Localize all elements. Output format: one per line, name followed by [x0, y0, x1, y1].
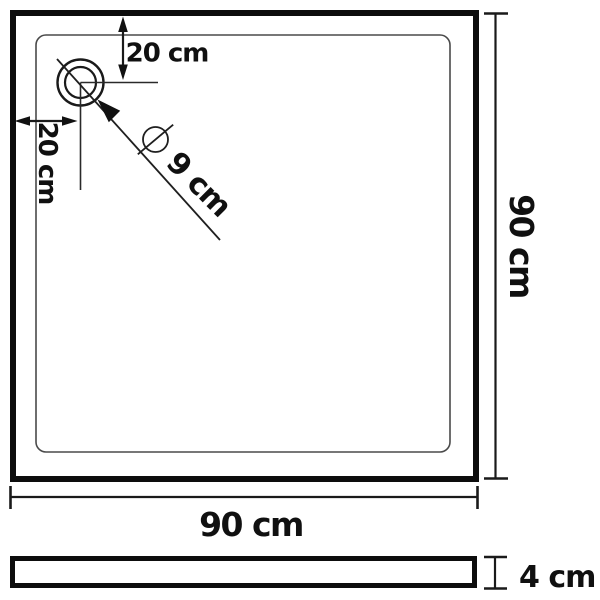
tray-thickness-label: 4 cm — [519, 560, 595, 595]
side-profile-bar — [13, 559, 475, 586]
tray-width-label: 90 cm — [199, 505, 303, 544]
tray-height-dimension: 90 cm — [484, 14, 541, 479]
drain-left-offset-label: 20 cm — [32, 122, 62, 205]
shower-tray-dimension-diagram: 20 cm 20 cm 9 cm 90 cm 90 cm — [0, 0, 600, 600]
tray-width-dimension: 90 cm — [11, 486, 478, 544]
diagram-canvas: 20 cm 20 cm 9 cm 90 cm 90 cm — [0, 0, 600, 600]
tray-thickness-dimension: 4 cm — [484, 557, 595, 595]
tray-height-label: 90 cm — [502, 194, 541, 298]
drain-top-offset-label: 20 cm — [126, 39, 209, 69]
